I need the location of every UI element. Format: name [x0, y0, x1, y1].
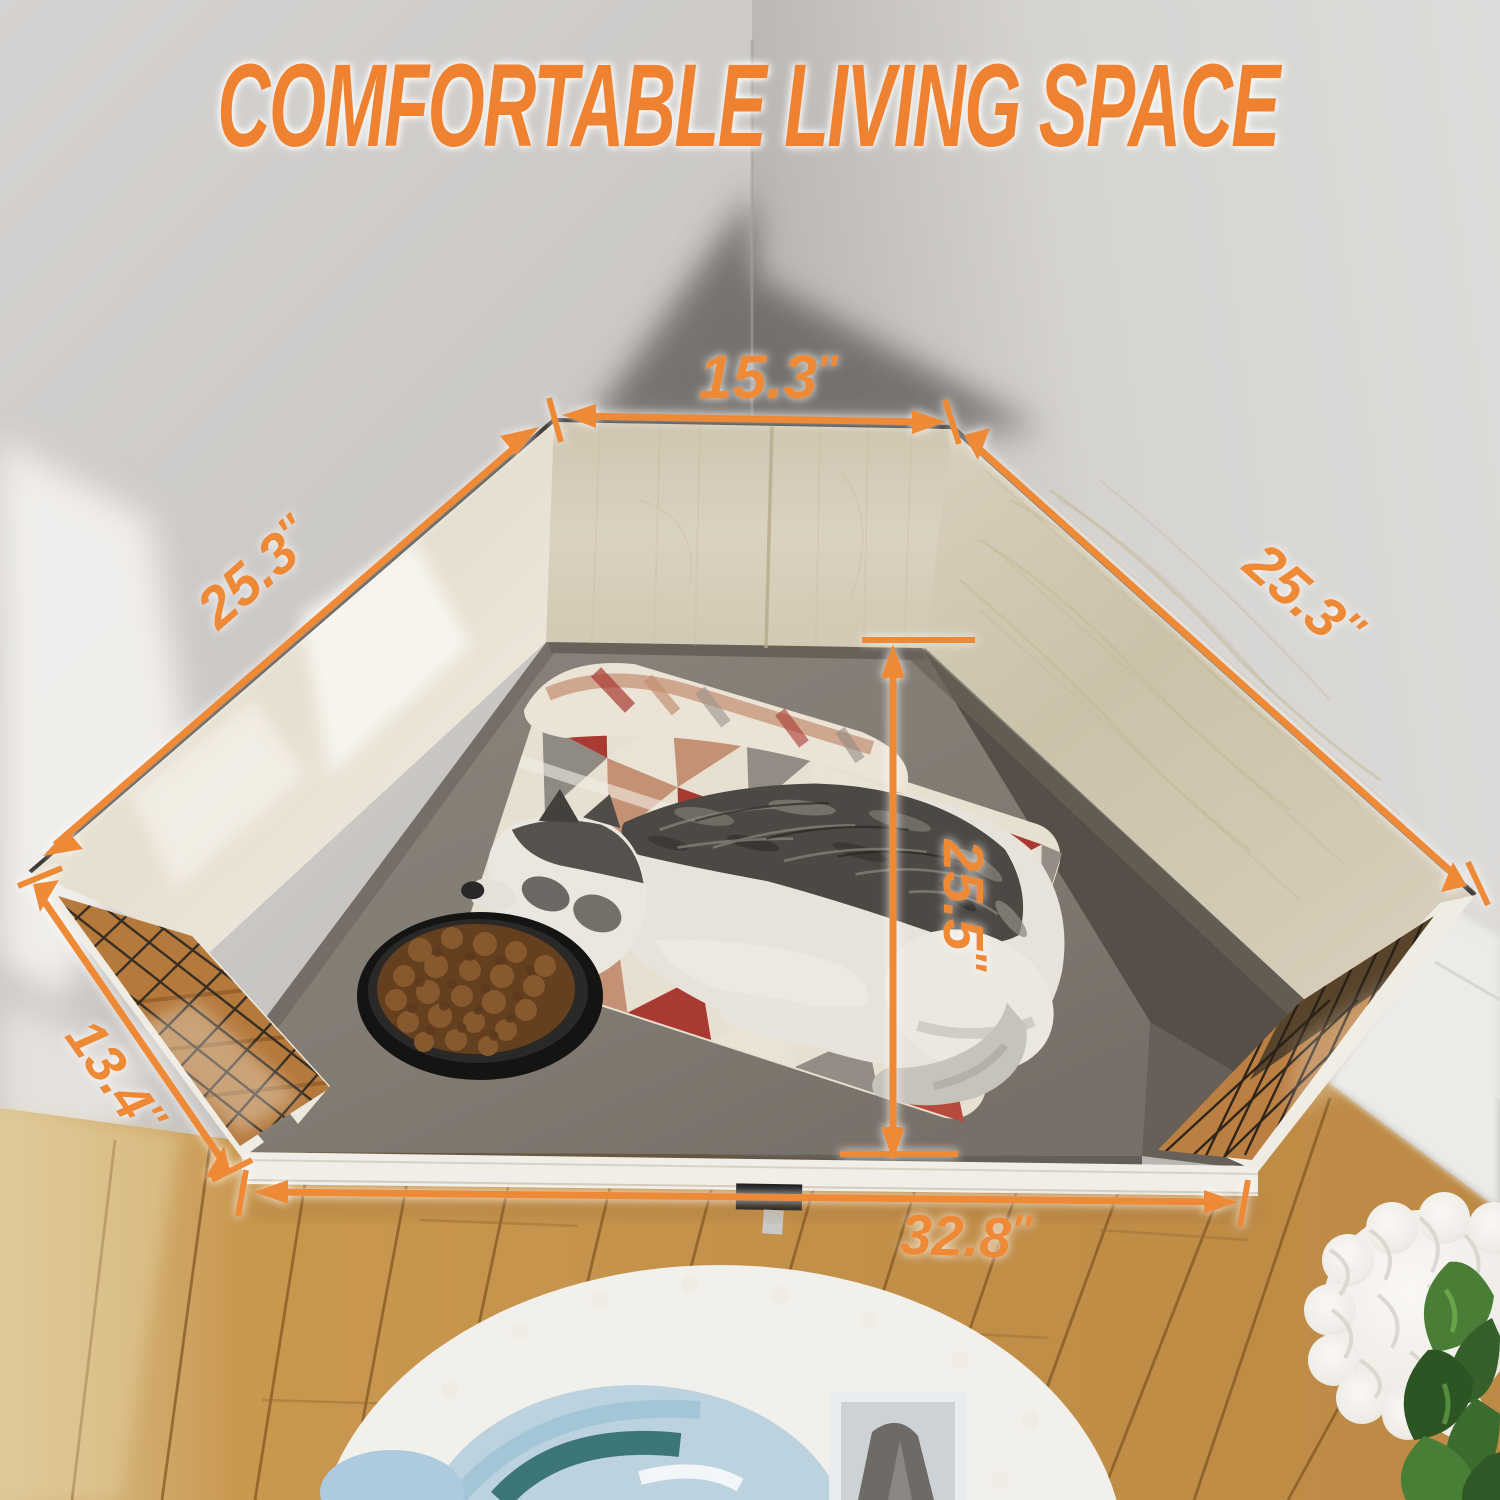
svg-text:COMFORTABLE LIVING SPACE: COMFORTABLE LIVING SPACE — [217, 39, 1282, 171]
